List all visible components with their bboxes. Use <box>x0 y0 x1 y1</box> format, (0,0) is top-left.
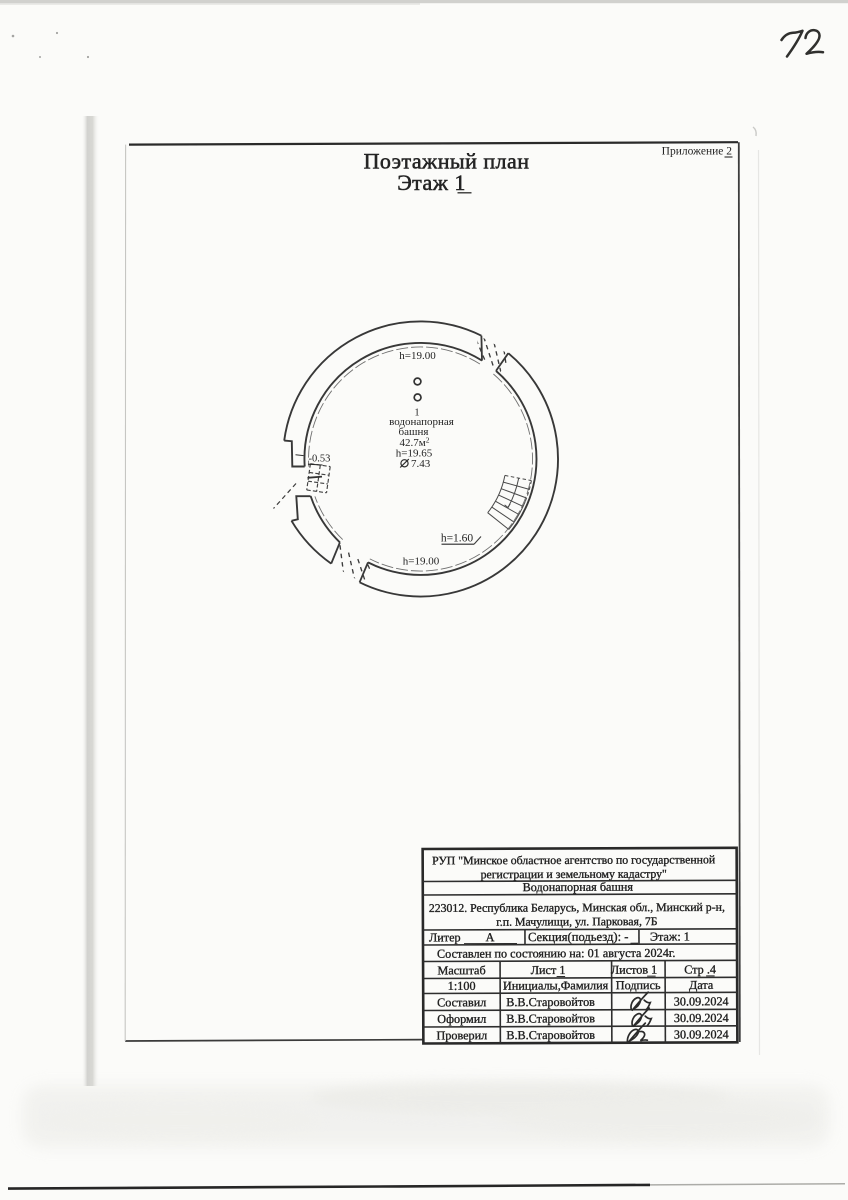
svg-text:Масштаб: Масштаб <box>437 963 485 977</box>
svg-text:г.п. Мачулищи, ул. Парковая, 7: г.п. Мачулищи, ул. Парковая, 7Б <box>496 914 658 929</box>
svg-text:Этаж: 1: Этаж: 1 <box>650 929 690 943</box>
svg-text:Листов 1: Листов 1 <box>611 963 657 977</box>
svg-text:Приложение 2: Приложение 2 <box>662 146 733 158</box>
svg-text:Стр .4: Стр .4 <box>684 962 716 976</box>
svg-text:В.В.Старовойтов: В.В.Старовойтов <box>506 995 595 1009</box>
svg-text:Литер: Литер <box>429 930 461 944</box>
svg-text:Секция(подьезд): -: Секция(подьезд): - <box>528 930 629 944</box>
svg-text:-0.53: -0.53 <box>309 453 331 464</box>
svg-text:30.09.2024: 30.09.2024 <box>674 994 729 1008</box>
svg-text:В.В.Старовойтов: В.В.Старовойтов <box>506 1011 595 1025</box>
svg-text:Этаж 1: Этаж 1 <box>397 170 466 195</box>
svg-text:Водонапорная башня: Водонапорная башня <box>523 880 634 894</box>
svg-text:Подпись: Подпись <box>616 978 661 992</box>
svg-text:Составил: Составил <box>437 995 486 1009</box>
svg-text:30.09.2024: 30.09.2024 <box>674 1027 729 1041</box>
svg-text:Проверил: Проверил <box>436 1028 487 1042</box>
svg-text:1:100: 1:100 <box>448 979 476 993</box>
svg-text:30.09.2024: 30.09.2024 <box>674 1011 729 1025</box>
svg-text:Дата: Дата <box>689 978 714 992</box>
svg-text:Составлен по состоянию на: 01: Составлен по состоянию на: 01 августа 20… <box>437 946 675 961</box>
svg-text:h=1.60: h=1.60 <box>441 533 474 545</box>
svg-text:Лист 1: Лист 1 <box>531 963 566 977</box>
svg-text:223012. Республика Беларусь, М: 223012. Республика Беларусь, Минская обл… <box>429 900 725 915</box>
svg-text:башня: башня <box>399 426 429 438</box>
svg-text:Инициалы,Фамилия: Инициалы,Фамилия <box>503 978 609 992</box>
svg-text:РУП "Минское областное агентст: РУП "Минское областное агентство по госу… <box>432 852 716 867</box>
svg-text:А: А <box>486 930 495 944</box>
svg-text:h=19.00: h=19.00 <box>403 556 440 568</box>
svg-text:Оформил: Оформил <box>437 1012 486 1026</box>
svg-text:7.43: 7.43 <box>411 458 431 470</box>
svg-text:В.В.Старовойтов: В.В.Старовойтов <box>506 1028 595 1042</box>
svg-text:h=19.00: h=19.00 <box>399 350 436 362</box>
